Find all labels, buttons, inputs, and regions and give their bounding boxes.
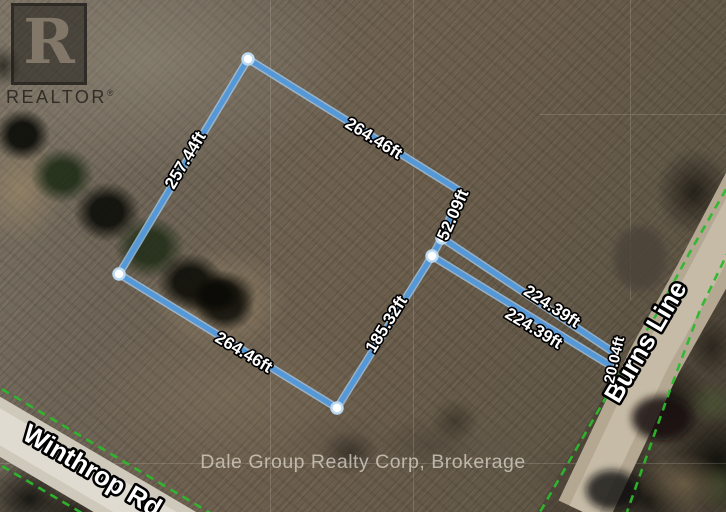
lot-lines: [119, 59, 613, 408]
vertex-dot: [114, 269, 125, 280]
measurement-label: 185.32ft: [361, 292, 411, 356]
aerial-map: Winthrop Rd Burns Line 257.44ft 264.46ft…: [0, 0, 726, 512]
brokerage-credit: Dale Group Realty Corp, Brokerage: [200, 451, 525, 474]
tree: [586, 470, 638, 510]
realtor-wordmark: REALTOR®: [6, 87, 114, 108]
realtor-logo-letter: R: [23, 11, 75, 73]
realtor-watermark: R REALTOR®: [6, 3, 114, 108]
realtor-brand-text: REALTOR: [6, 87, 107, 107]
registered-symbol: ®: [107, 88, 114, 98]
realtor-logo-icon: R: [11, 3, 87, 85]
vertex-dot: [427, 251, 438, 262]
vertex-dot: [332, 403, 343, 414]
tree: [632, 396, 692, 440]
measurement-label: 257.44ft: [161, 128, 210, 192]
measurement-label: 264.46ft: [212, 328, 276, 377]
tree: [614, 226, 666, 290]
vertex-handles: [114, 54, 448, 414]
vertex-dot: [243, 54, 254, 65]
measurement-label: 264.46ft: [342, 114, 406, 163]
measurement-label: 52.09ft: [433, 186, 472, 243]
